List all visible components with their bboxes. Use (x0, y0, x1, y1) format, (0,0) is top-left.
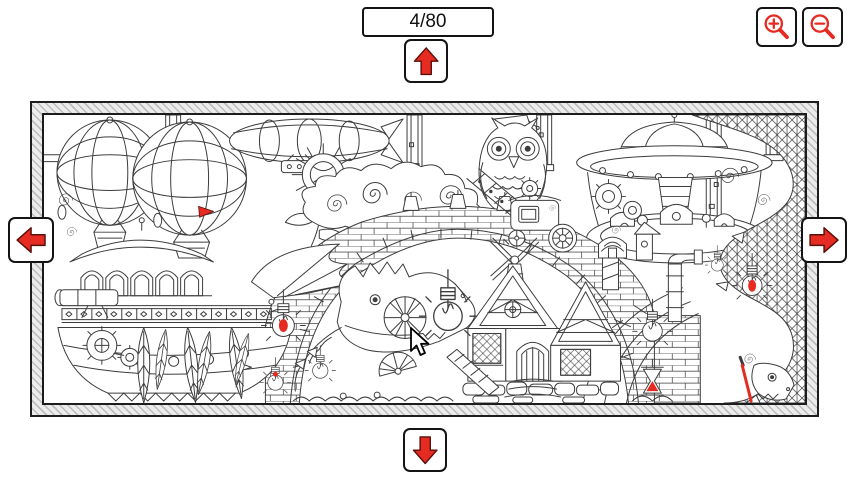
scroll-down-button[interactable] (403, 428, 447, 472)
picture-frame (30, 101, 819, 417)
red-bulb-filament (279, 319, 288, 332)
coloring-scene-svg (44, 115, 805, 403)
magnifier-plus-icon (761, 12, 793, 43)
arrow-up-icon (409, 44, 443, 78)
red-paint-stroke (740, 357, 751, 401)
game-window: 4/80 (0, 0, 853, 480)
red-bulb-filament (748, 280, 756, 292)
hot-air-balloons (57, 117, 247, 258)
steampunk-ship (55, 218, 291, 401)
zoom-out-button[interactable] (802, 7, 843, 47)
progress-counter: 4/80 (362, 7, 494, 37)
scroll-right-button[interactable] (801, 217, 847, 263)
arrow-left-icon (13, 222, 49, 258)
arrow-down-icon (408, 433, 442, 467)
scroll-left-button[interactable] (8, 217, 54, 263)
arrow-right-icon (806, 222, 842, 258)
progress-counter-value: 4/80 (410, 11, 447, 33)
coloring-canvas[interactable] (42, 113, 807, 405)
magnifier-minus-icon (807, 12, 839, 43)
zoom-in-button[interactable] (756, 7, 797, 47)
scroll-up-button[interactable] (404, 39, 448, 83)
